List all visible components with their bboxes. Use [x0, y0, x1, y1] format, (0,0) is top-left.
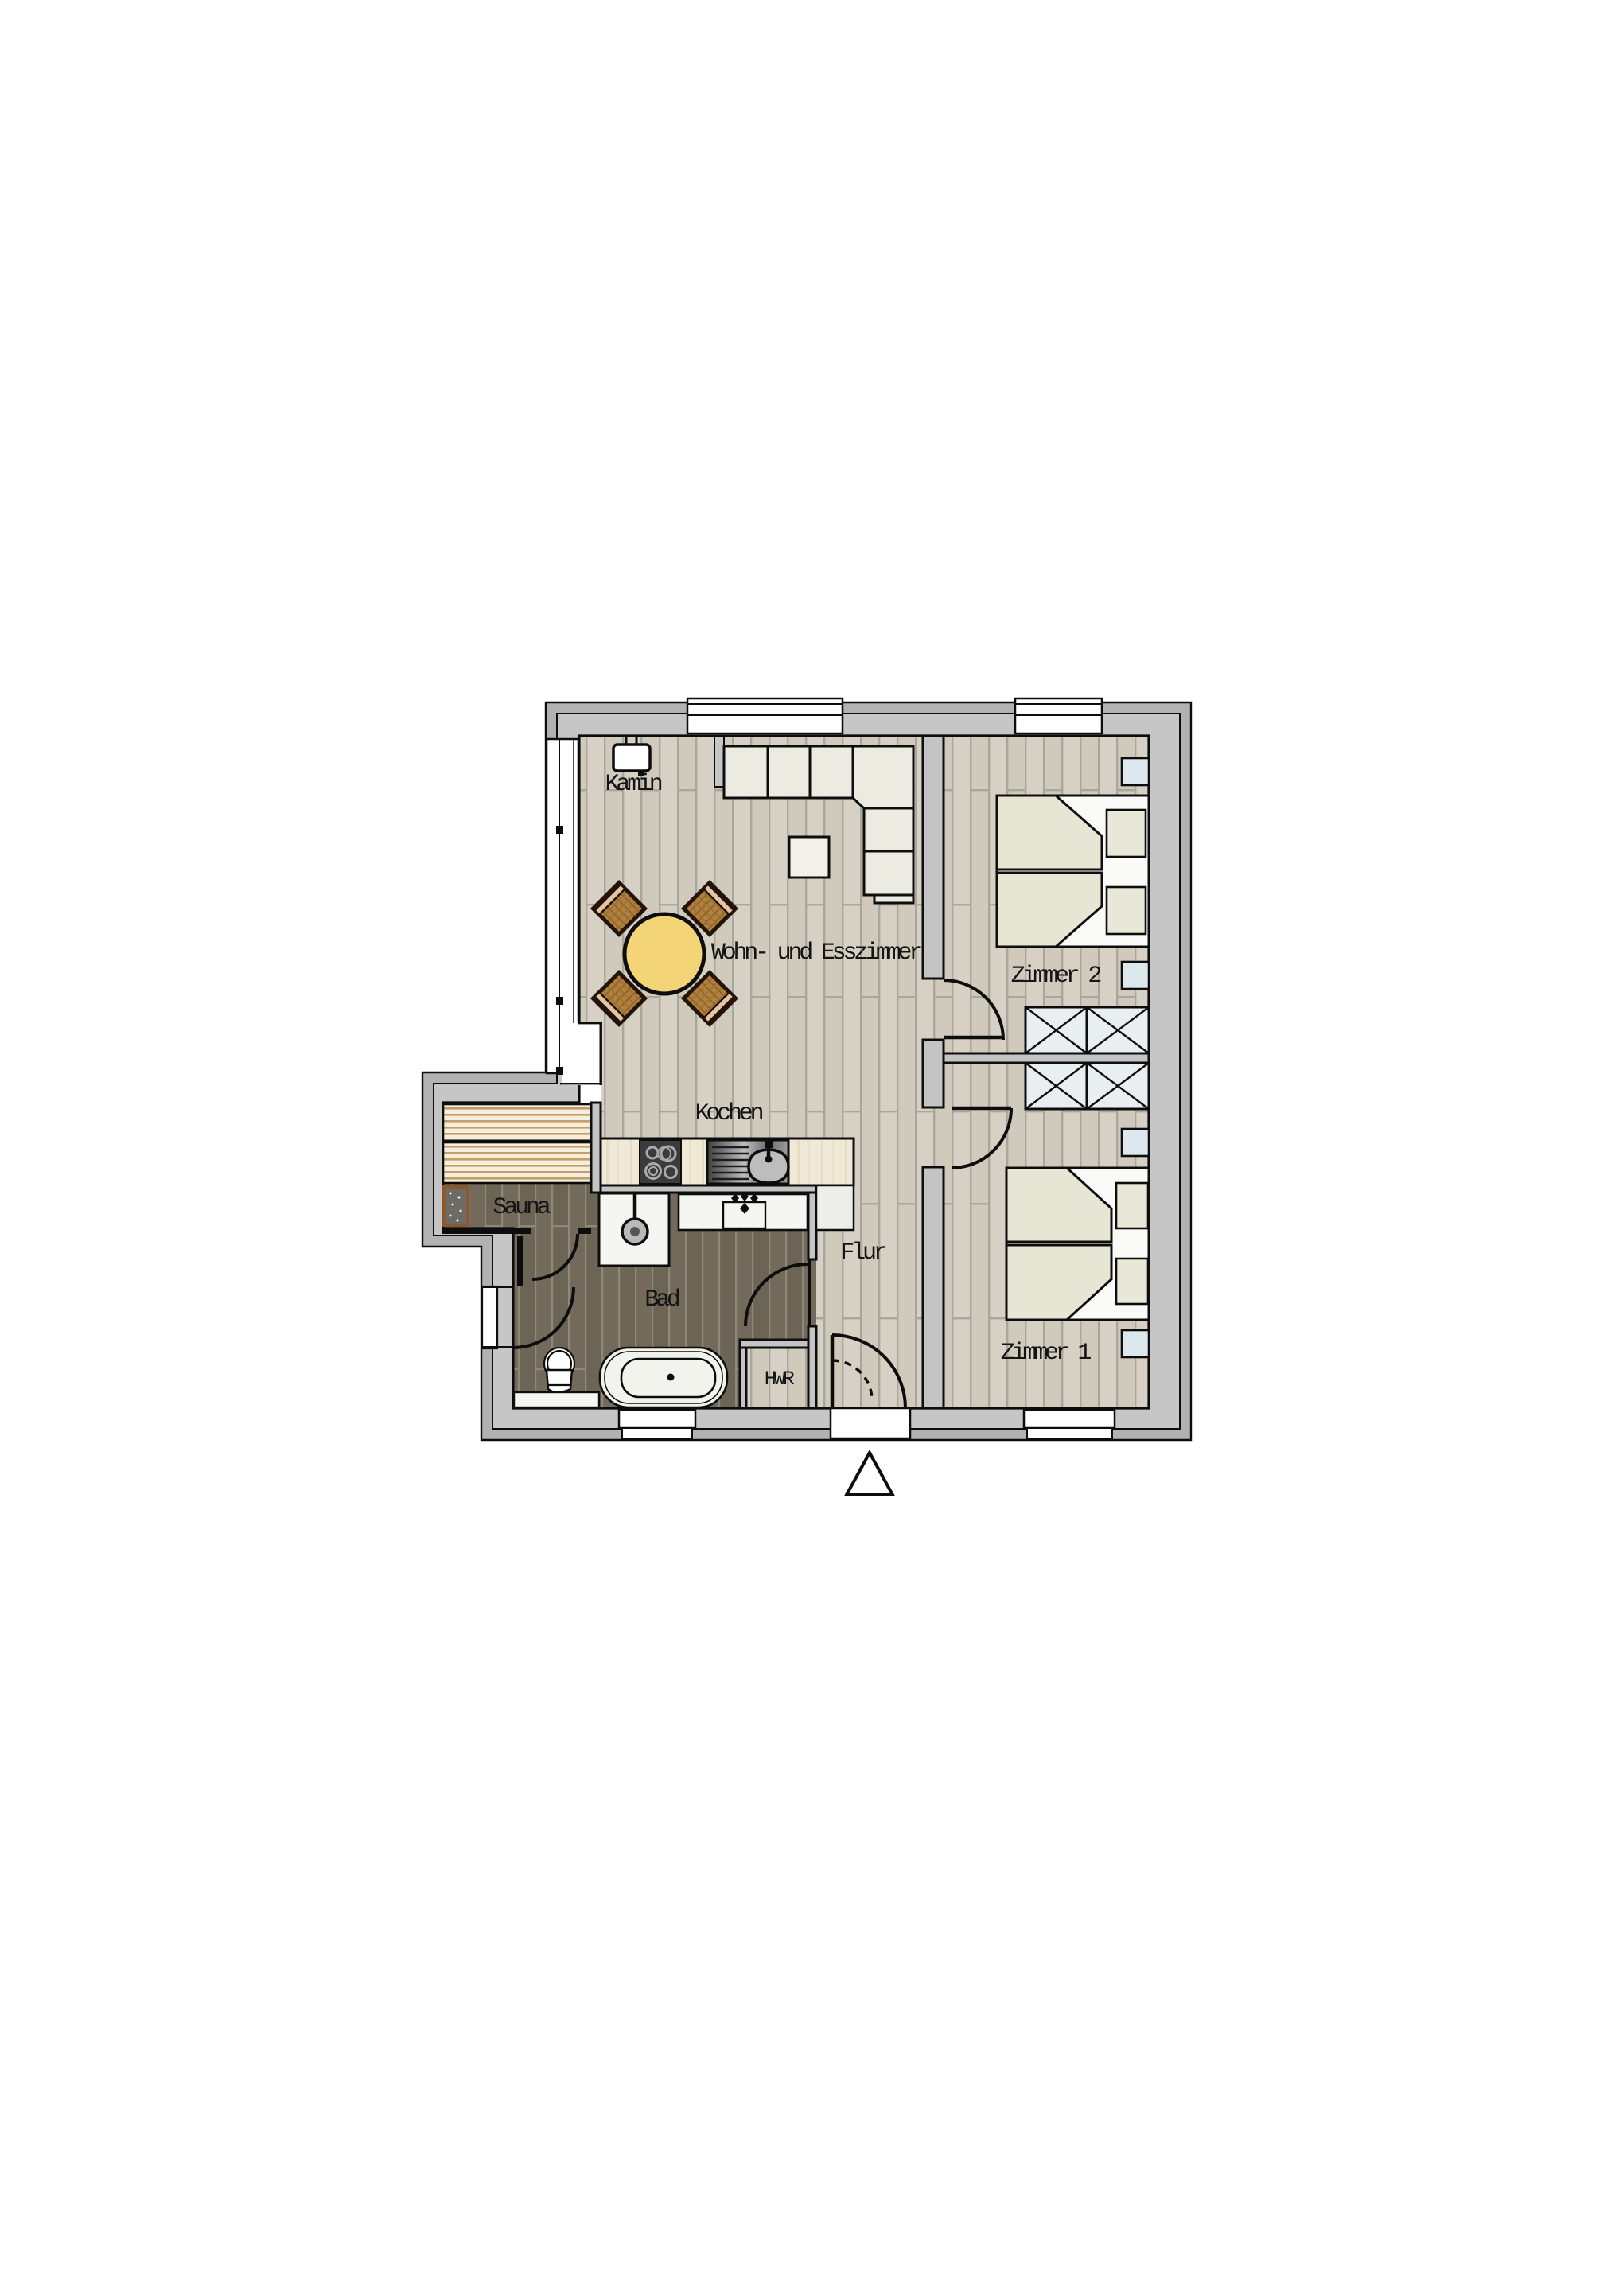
svg-text:Flur: Flur: [840, 1239, 885, 1267]
svg-text:Bad: Bad: [644, 1286, 679, 1313]
svg-text:Wohn- und Esszimmer: Wohn- und Esszimmer: [711, 940, 921, 967]
svg-text:Kochen: Kochen: [695, 1100, 763, 1127]
svg-text:Zimmer 2: Zimmer 2: [1011, 963, 1101, 990]
svg-text:Kamin: Kamin: [605, 771, 661, 798]
svg-text:Zimmer 1: Zimmer 1: [1001, 1340, 1092, 1367]
svg-text:Sauna: Sauna: [492, 1194, 550, 1221]
svg-text:HWR: HWR: [765, 1368, 795, 1391]
